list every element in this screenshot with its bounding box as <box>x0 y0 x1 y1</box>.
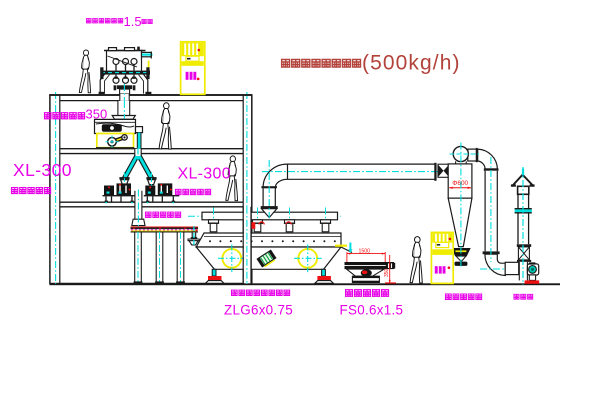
svg-text:XL-300: XL-300 <box>178 166 231 183</box>
svg-text:350: 350 <box>384 268 390 277</box>
svg-text:XL-300: XL-300 <box>13 160 72 180</box>
svg-text:ZLG6x0.75: ZLG6x0.75 <box>224 303 293 318</box>
svg-text:350: 350 <box>86 107 108 122</box>
svg-text:FS0.6x1.5: FS0.6x1.5 <box>340 303 404 318</box>
svg-text:1500: 1500 <box>359 249 371 255</box>
svg-text:1.5: 1.5 <box>124 14 142 29</box>
svg-text:(500kg/h): (500kg/h) <box>362 52 461 75</box>
